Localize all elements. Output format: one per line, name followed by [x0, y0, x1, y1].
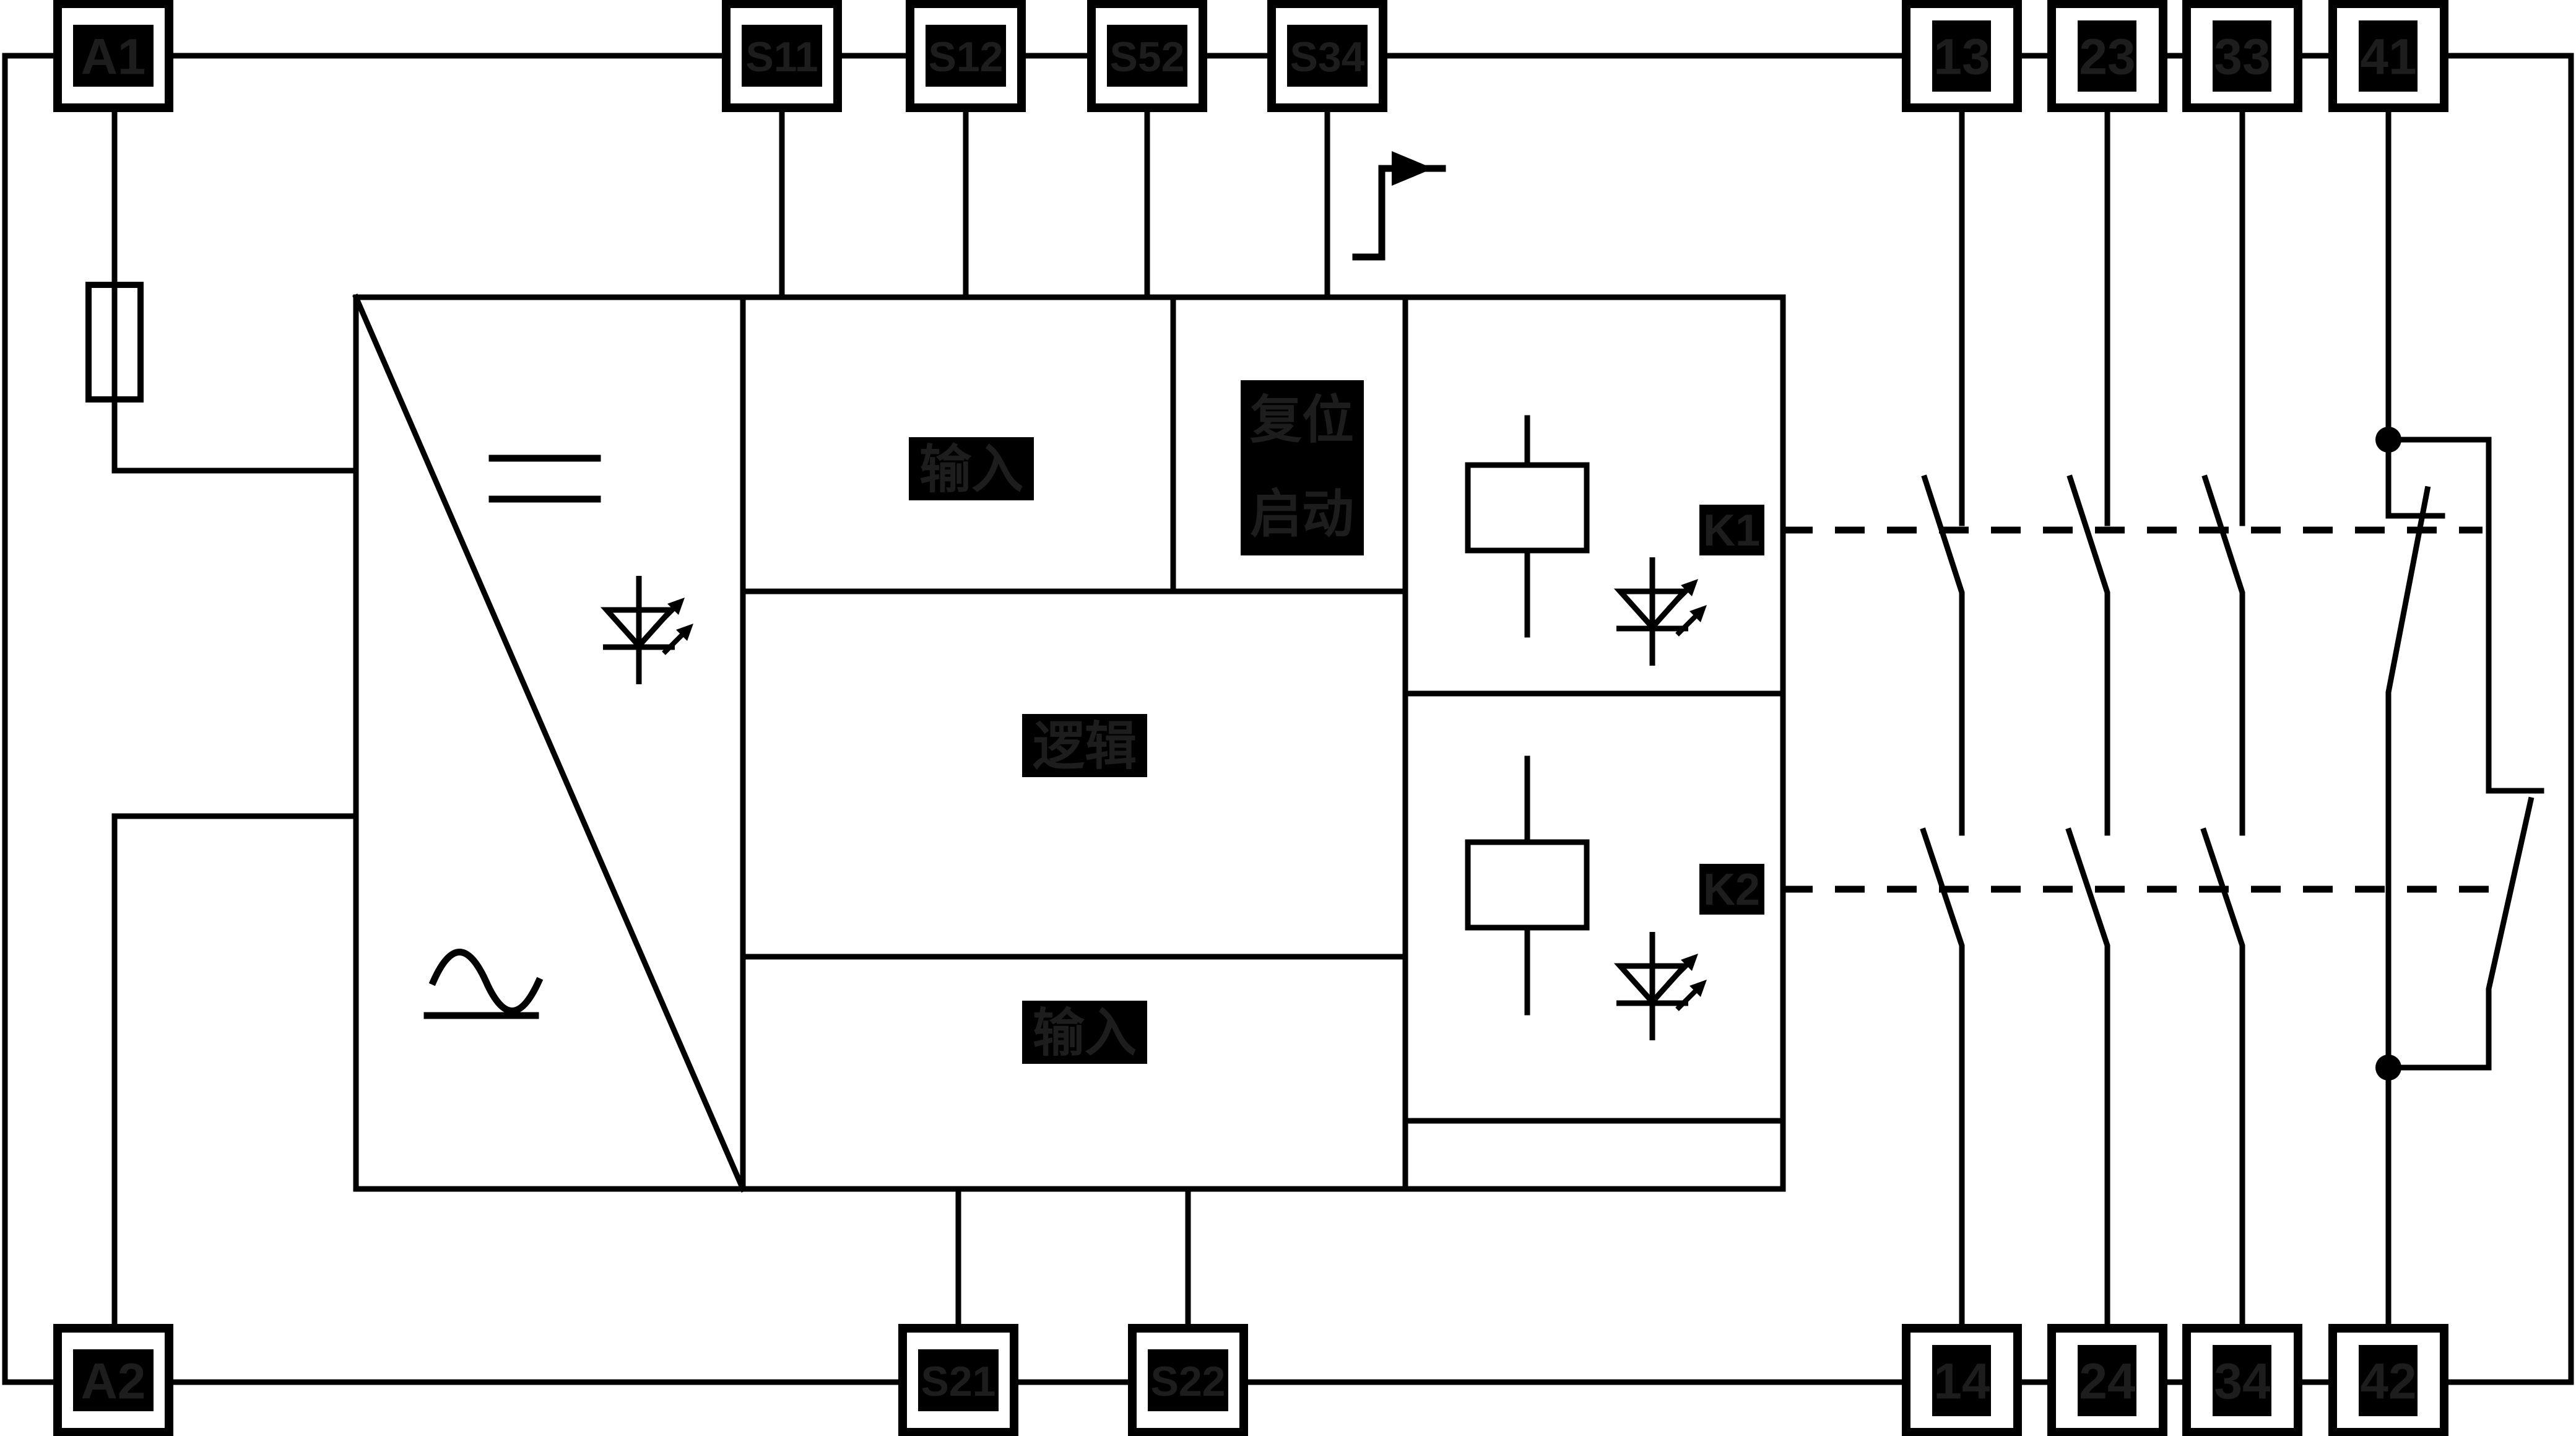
- terminal-s34: S34: [1272, 4, 1383, 108]
- outer-frame: [5, 56, 2571, 1382]
- terminal-23: 23: [2052, 4, 2163, 108]
- terminal-42-label: 42: [2360, 1354, 2416, 1410]
- terminal-s21-label: S21: [921, 1358, 996, 1405]
- terminal-14: 14: [1906, 1328, 2018, 1432]
- k1-label: K1: [1703, 506, 1760, 555]
- terminal-s22: S22: [1132, 1328, 1244, 1432]
- terminal-33: 33: [2187, 4, 2298, 108]
- terminal-41: 41: [2333, 4, 2444, 108]
- bypass-nc-contact: [2388, 800, 2531, 1068]
- terminal-23-label: 23: [2079, 29, 2135, 85]
- terminal-a1: A1: [58, 4, 169, 108]
- reset-flag-arrowhead: [1392, 151, 1433, 186]
- relay-channel-k1: K1: [1468, 418, 1764, 666]
- terminal-s34-label: S34: [1290, 33, 1365, 81]
- reset-flag-icon: [1356, 151, 1442, 257]
- k1-led-icon: [1616, 557, 1707, 666]
- logic-blocks: 输入 复位 启动 逻辑 输入: [909, 380, 1364, 1064]
- terminal-34-label: 34: [2214, 1354, 2271, 1410]
- reset-label: 复位: [1250, 391, 1354, 449]
- relay-channel-k2: K2: [1468, 759, 1764, 1040]
- input-bottom-label: 输入: [1033, 1004, 1137, 1062]
- contact-column-41-42: [2375, 108, 2541, 1328]
- terminal-a2: A2: [58, 1328, 169, 1432]
- terminal-13-label: 13: [1933, 29, 1990, 85]
- terminal-24-label: 24: [2079, 1354, 2136, 1410]
- contact-column-33-34: [2204, 108, 2242, 1328]
- terminal-a1-label: A1: [81, 29, 146, 85]
- contact1-lower-no-contact: [1923, 831, 1962, 1328]
- terminal-s12: S12: [910, 4, 1021, 108]
- terminal-41-label: 41: [2360, 29, 2416, 85]
- terminal-42: 42: [2333, 1328, 2444, 1432]
- bypass-branch-upper: [2388, 440, 2541, 791]
- terminal-s11-label: S11: [745, 33, 818, 81]
- power-supply-section: [427, 458, 693, 1016]
- terminal-34: 34: [2187, 1328, 2298, 1432]
- terminal-s11: S11: [726, 4, 838, 108]
- k2-led-icon: [1616, 932, 1707, 1040]
- terminal-s22-label: S22: [1151, 1358, 1226, 1405]
- terminal-s21: S21: [903, 1328, 1014, 1432]
- terminal-s52-label: S52: [1110, 33, 1185, 81]
- ac-symbol-icon: [427, 952, 539, 1016]
- k1-relay-coil: [1468, 465, 1587, 550]
- power-led-icon: [603, 576, 693, 684]
- safety-relay-wiring-diagram: 输入 复位 启动 逻辑 输入 K1 K2: [0, 0, 2576, 1436]
- k2-label: K2: [1703, 865, 1760, 915]
- a1-wire: [115, 108, 356, 471]
- k2-relay-coil: [1468, 842, 1587, 928]
- terminal-24: 24: [2052, 1328, 2163, 1432]
- terminal-33-label: 33: [2214, 29, 2270, 85]
- start-label: 启动: [1250, 485, 1354, 543]
- dc-symbol-icon: [492, 458, 597, 499]
- a2-wire: [115, 816, 356, 1328]
- contact2-lower-no-contact: [2069, 831, 2107, 1328]
- logic-label: 逻辑: [1033, 717, 1137, 775]
- terminal-s12-label: S12: [929, 33, 1004, 81]
- contact3-lower-no-contact: [2204, 831, 2242, 1328]
- terminal-a2-label: A2: [81, 1354, 146, 1410]
- terminal-13: 13: [1906, 4, 2018, 108]
- contact4-nc-contact: [2388, 489, 2427, 1328]
- input-top-label: 输入: [919, 440, 1023, 498]
- converter-diagonal: [356, 297, 743, 1189]
- contact4-top-stub-nc-fixed: [2388, 108, 2442, 516]
- contact-column-13-14: [1923, 108, 1962, 1328]
- terminal-s52: S52: [1091, 4, 1203, 108]
- terminal-14-label: 14: [1933, 1354, 1990, 1410]
- contact-column-23-24: [2069, 108, 2107, 1328]
